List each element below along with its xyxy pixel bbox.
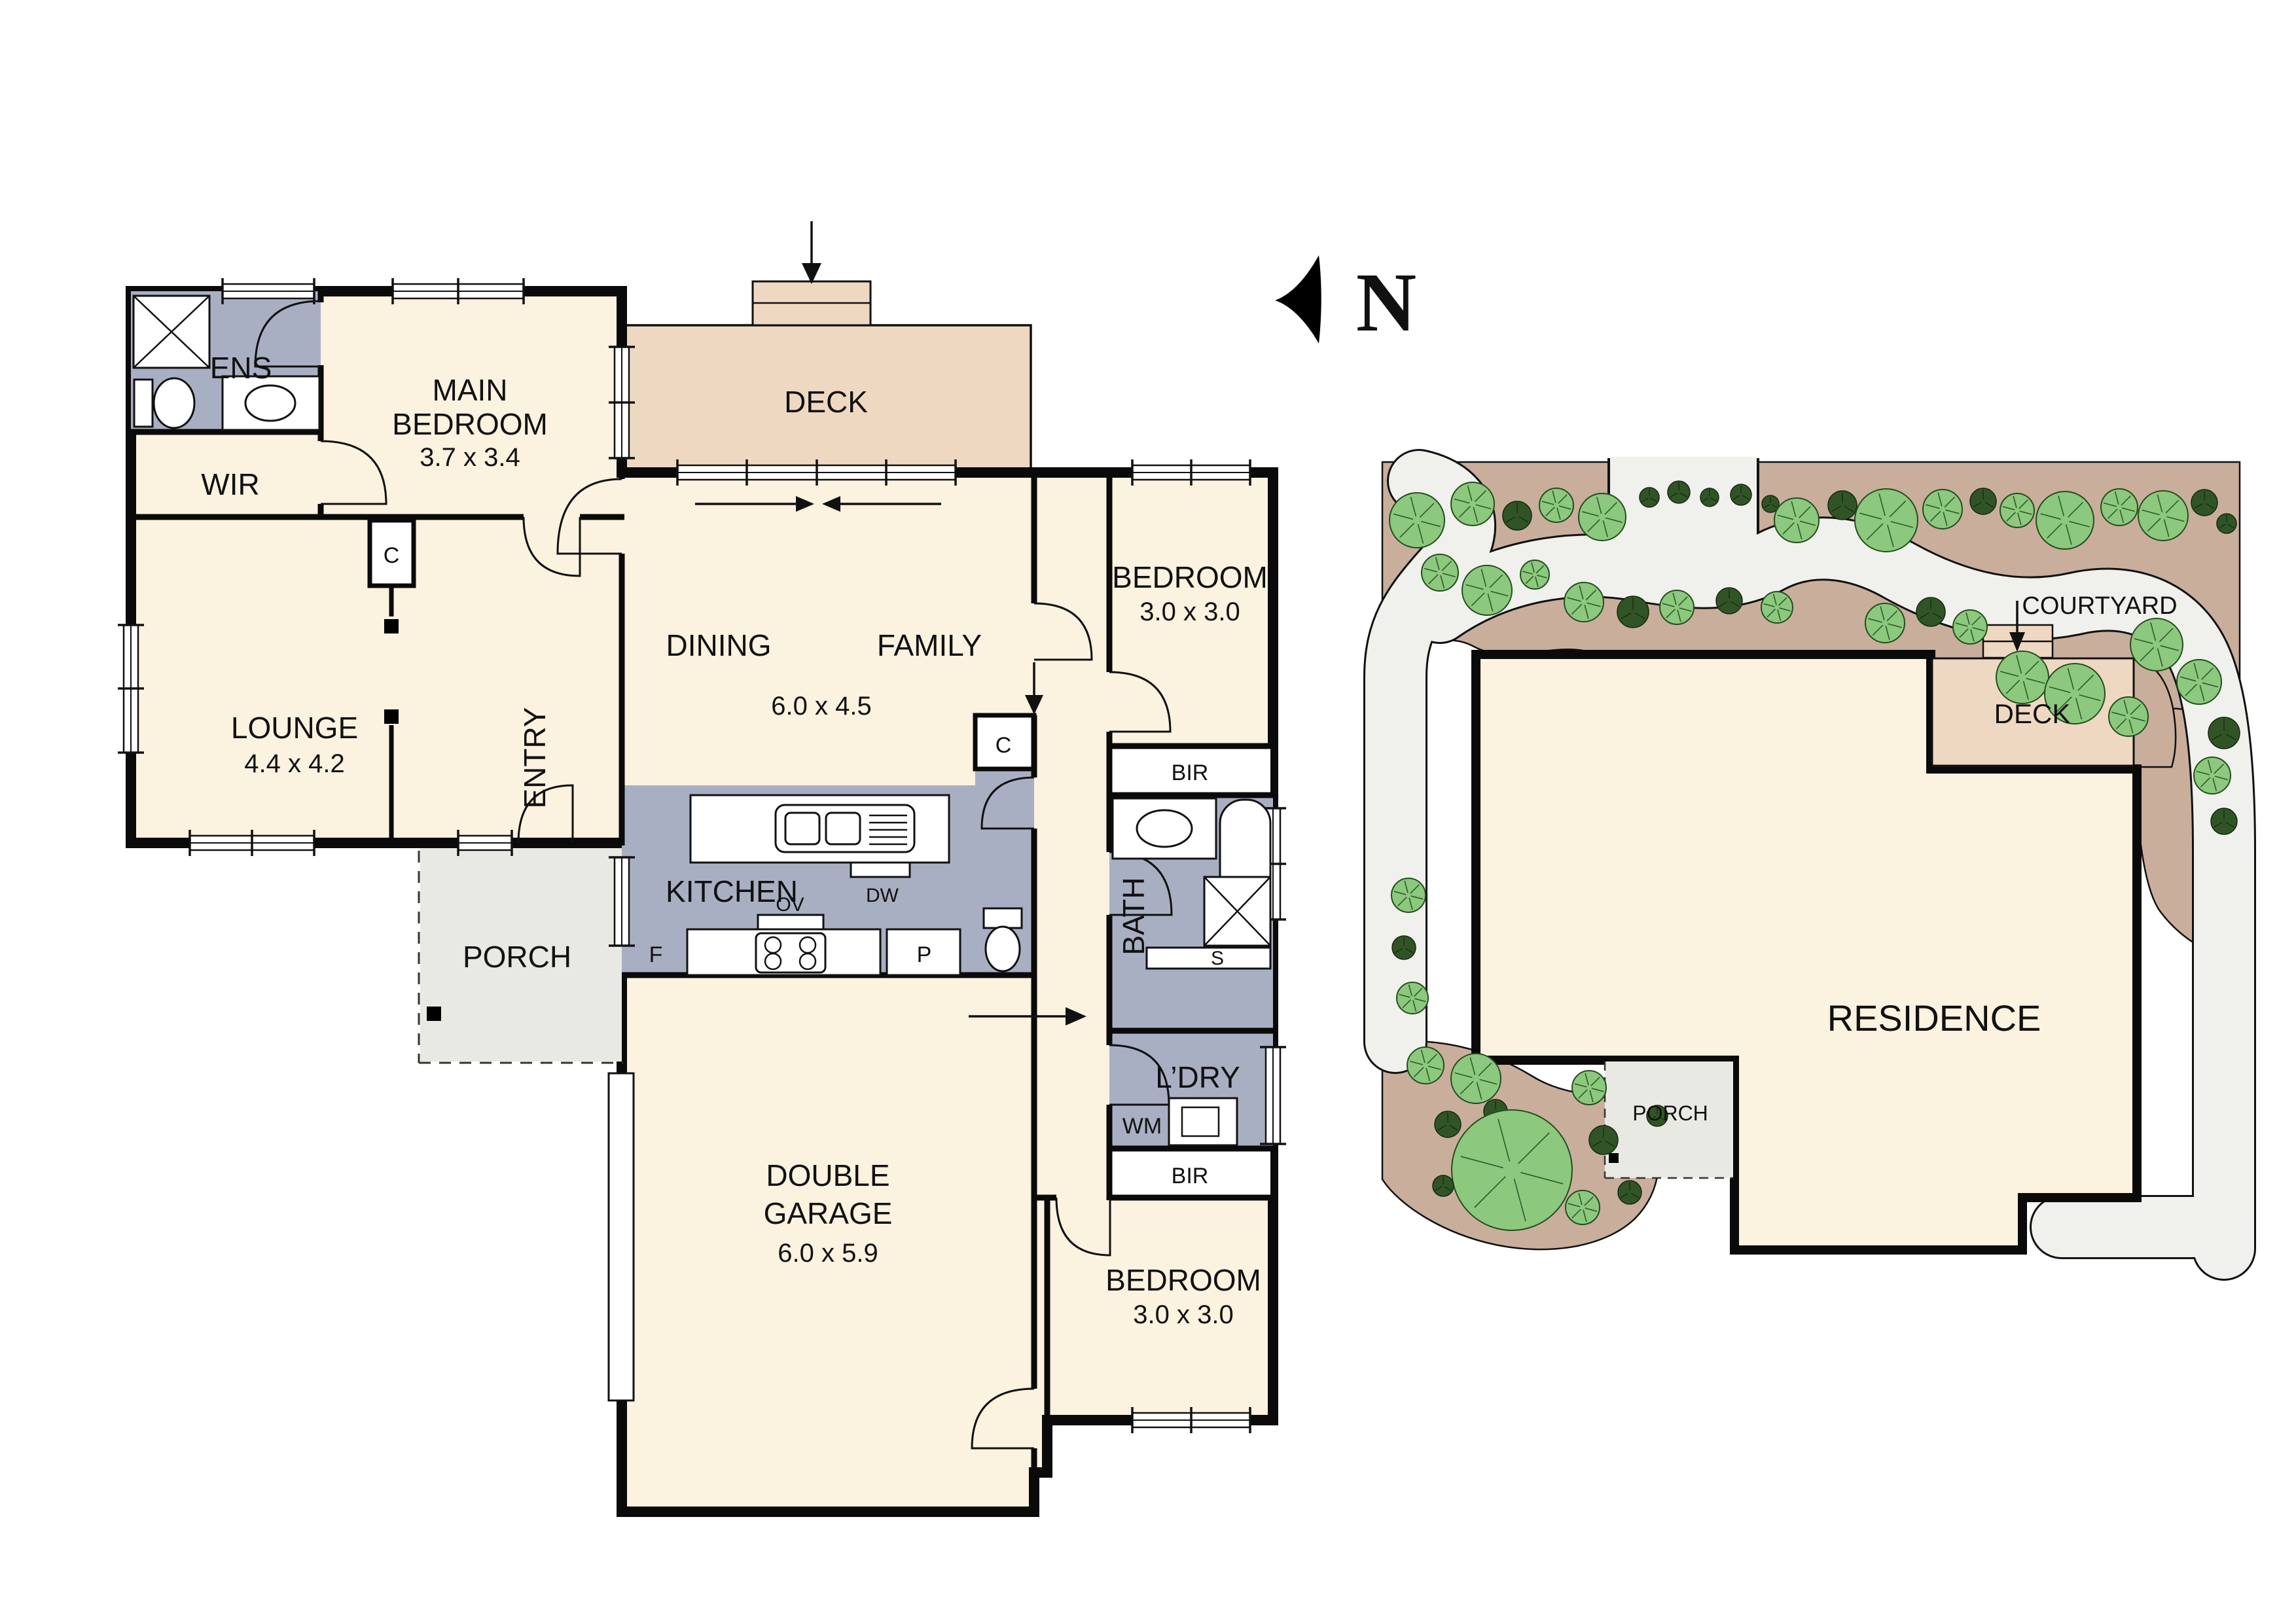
tree-icon	[1660, 590, 1694, 624]
floor-plan: ENS WIR MAIN BEDROOM 3.7 x 3.4 DECK LOUN…	[118, 221, 1286, 1512]
dining-label: DINING	[666, 628, 772, 662]
bedroom1-dim: 3.0 x 3.0	[1139, 597, 1240, 626]
bush-icon	[2211, 808, 2237, 834]
oven	[758, 915, 823, 929]
toilet-cistern-icon	[134, 380, 152, 427]
tree-icon	[2109, 697, 2148, 736]
bath-basin-icon	[1137, 810, 1192, 847]
laundry-trough-icon	[1169, 1098, 1237, 1145]
north-indicator: N	[1275, 255, 1416, 349]
main-bedroom-label-1: MAIN	[433, 373, 508, 407]
bedroom2-label: BEDROOM	[1105, 1263, 1261, 1297]
lounge-label: LOUNGE	[231, 711, 358, 745]
toilet-icon	[154, 378, 194, 428]
shelf-label: S	[1211, 948, 1224, 969]
tree-icon	[1564, 582, 1604, 622]
bir-bottom-label: BIR	[1172, 1164, 1209, 1188]
dw-label: DW	[866, 885, 899, 906]
main-bedroom-dim: 3.7 x 3.4	[420, 443, 520, 472]
dishwasher	[851, 863, 910, 877]
bedroom1-label: BEDROOM	[1112, 560, 1268, 594]
lounge-dim: 4.4 x 4.2	[244, 749, 344, 778]
tree-icon	[2101, 489, 2138, 526]
tree-icon	[1390, 493, 1444, 548]
tree-icon	[1422, 554, 1458, 591]
tree-icon	[1397, 982, 1428, 1014]
bush-icon	[1617, 596, 1649, 628]
main-bedroom-label-2: BEDROOM	[392, 407, 548, 441]
bush-icon	[2208, 717, 2240, 749]
bush-icon	[1589, 1126, 1618, 1154]
tree-icon	[2000, 493, 2034, 527]
deck-area	[625, 221, 1031, 473]
bush-icon	[1640, 488, 1659, 507]
toilet-icon	[986, 927, 1020, 971]
bath-label: BATH	[1117, 877, 1151, 955]
north-label: N	[1356, 256, 1416, 349]
living-dim: 6.0 x 4.5	[771, 692, 871, 721]
tree-icon	[1996, 651, 2049, 704]
tree-icon	[2194, 757, 2231, 794]
tree-icon	[1462, 565, 1512, 615]
tree-icon	[1579, 493, 1626, 541]
tree-icon	[1566, 1190, 1600, 1224]
sink-bowl-icon	[785, 813, 819, 844]
bush-icon	[1970, 488, 1996, 514]
site-porch-label: PORCH	[1632, 1101, 1708, 1125]
courtyard-label: COURTYARD	[2022, 592, 2177, 620]
bush-icon	[1618, 1181, 1641, 1204]
tree-icon	[1391, 878, 1426, 912]
tree-icon	[1761, 592, 1793, 623]
bath-shelf	[1147, 948, 1270, 969]
garage-dim: 6.0 x 5.9	[778, 1239, 878, 1268]
wm-label: WM	[1122, 1114, 1162, 1139]
bush-icon	[1503, 501, 1532, 530]
tree-icon	[1407, 1047, 1444, 1084]
site-residence-label: RESIDENCE	[1827, 997, 2041, 1039]
sink-bowl-icon	[826, 813, 860, 844]
tree-icon	[1452, 1110, 1572, 1230]
ens-label: ENS	[210, 351, 272, 385]
tree-icon	[1539, 488, 1573, 522]
fridge-label: F	[649, 942, 663, 967]
bush-icon	[1716, 588, 1742, 614]
site-plan: COURTYARD DECK PORCH RESIDENCE	[1382, 457, 2240, 1250]
porch-post	[427, 1007, 441, 1021]
ens-basin-icon	[245, 385, 295, 421]
site-porch-post	[1609, 1153, 1619, 1163]
bush-icon	[1700, 488, 1719, 507]
tree-icon	[2138, 491, 2188, 541]
tree-icon	[2177, 660, 2221, 704]
post	[384, 709, 399, 724]
entry-cupboard-label: C	[384, 543, 400, 568]
bedroom2-dim: 3.0 x 3.0	[1133, 1300, 1233, 1329]
north-arrow-icon	[1275, 255, 1321, 344]
tree-icon	[1953, 610, 1987, 644]
garage-label-1: DOUBLE	[766, 1158, 889, 1192]
tree-icon	[2130, 618, 2183, 671]
wir-label: WIR	[201, 467, 259, 501]
tree-icon	[1923, 490, 1962, 529]
bush-icon	[1668, 481, 1690, 503]
deck-label: DECK	[784, 385, 868, 419]
tree-icon	[1572, 1071, 1606, 1105]
tree-icon	[1451, 1054, 1501, 1103]
bush-icon	[2217, 514, 2236, 533]
tree-icon	[1451, 482, 1494, 526]
entry-label: ENTRY	[518, 707, 552, 808]
porch-label: PORCH	[463, 940, 571, 974]
tree-icon	[1855, 489, 1918, 552]
tree-icon	[1865, 603, 1905, 643]
ov-label: OV	[776, 894, 804, 916]
toilet-cistern-icon	[984, 908, 1022, 928]
bush-icon	[1828, 491, 1857, 520]
bir-top-label: BIR	[1172, 760, 1209, 785]
bush-icon	[1731, 484, 1751, 505]
garage-door	[609, 1073, 634, 1400]
hall-cupboard-label: C	[996, 733, 1012, 758]
bush-icon	[1392, 936, 1416, 959]
bush-icon	[1916, 597, 1945, 626]
bush-icon	[1433, 1175, 1454, 1196]
pantry-label: P	[917, 942, 932, 967]
tree-icon	[1520, 560, 1549, 589]
garage-label-2: GARAGE	[764, 1196, 893, 1230]
bush-icon	[2191, 490, 2217, 516]
bush-icon	[1435, 1111, 1461, 1137]
tree-icon	[1774, 498, 1819, 543]
post	[384, 619, 399, 633]
family-label: FAMILY	[877, 628, 982, 662]
site-deck-label: DECK	[1994, 698, 2071, 729]
laundry-label: L’DRY	[1155, 1060, 1240, 1094]
tree-icon	[2036, 491, 2094, 549]
